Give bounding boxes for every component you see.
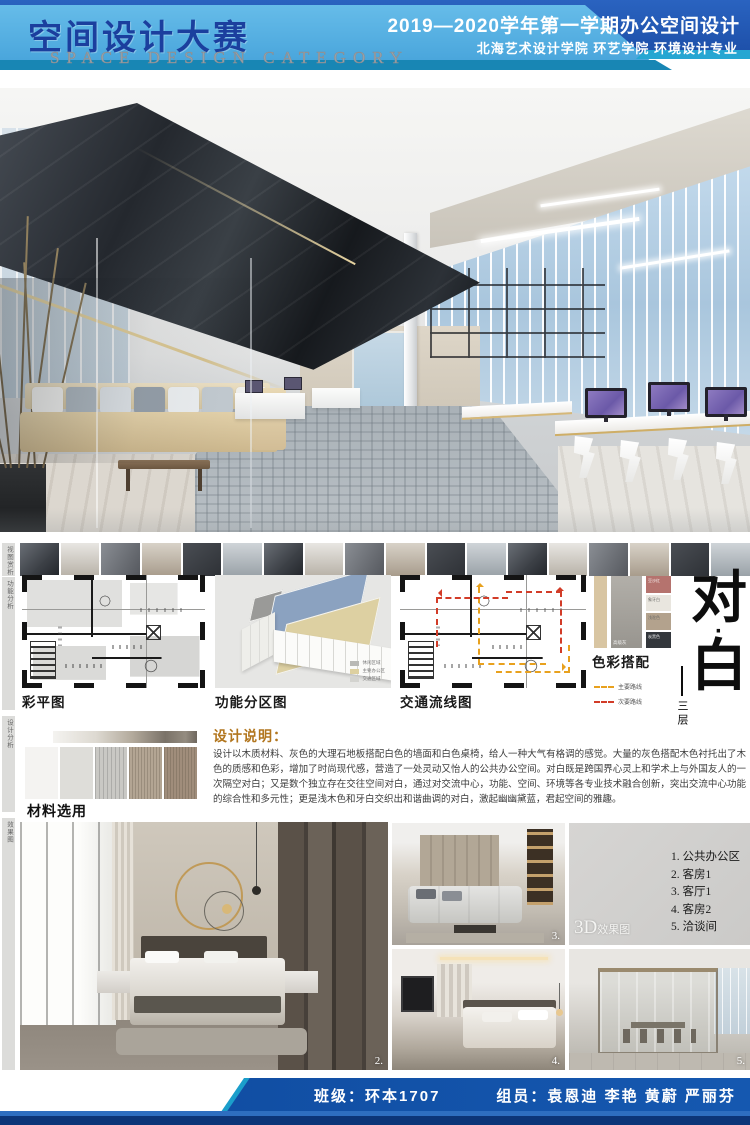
color-chip: 炭黑色	[646, 632, 671, 649]
legend-label: 主要办公区	[363, 668, 386, 674]
project-title-block: 对 · 白 三层	[674, 570, 750, 730]
legend-row: 次要路线	[594, 697, 642, 706]
poster-subtitle: SPACE DESIGN CATEGORY	[50, 48, 409, 68]
materials-label: 材料选用	[27, 801, 87, 821]
thumbnail-image	[142, 543, 181, 576]
description-heading: 设计说明：	[213, 726, 288, 746]
thumbnail-strip	[20, 543, 750, 576]
thumbnail-image	[427, 543, 466, 576]
render-number: 2.	[375, 1055, 383, 1067]
color-plan-label: 彩平图	[22, 691, 66, 711]
flow-arrow	[562, 663, 570, 671]
plan-stairs	[30, 641, 56, 679]
bedroom-throw-blanket	[134, 996, 281, 1013]
floor-indicator-label: 三层	[674, 700, 690, 728]
legend-swatch	[350, 661, 359, 666]
color-chip: 豆沙红	[646, 576, 671, 593]
meeting-chairs	[623, 1029, 695, 1044]
hero-white-desk	[312, 388, 360, 408]
flow-arrow	[556, 583, 564, 591]
legend-row: 主要办公区	[350, 668, 386, 674]
thumbnail-image	[101, 543, 140, 576]
material-swatch	[129, 747, 162, 799]
bedroom-pendant-lamp	[256, 822, 257, 886]
traffic-flow-plan	[400, 575, 586, 688]
class-label: 班级：环本1707	[314, 1085, 440, 1106]
bedroom-bed	[130, 958, 285, 1025]
hero-monitor-small	[284, 377, 302, 390]
rail-tab-renders: 效果图	[2, 818, 15, 1070]
rail-tab-label: 视图赏析	[4, 546, 14, 576]
render-bedroom-large: 2.	[20, 822, 388, 1070]
legend-swatch	[594, 686, 614, 688]
rail-tab-function: 功能分析	[2, 577, 15, 710]
footer-dark-strip	[0, 1116, 750, 1125]
floor-indicator: 三层	[675, 666, 689, 728]
members-label: 组员：袁恩迪 李艳 黄蔚 严丽芬	[496, 1085, 736, 1106]
thumbnail-image	[467, 543, 506, 576]
rail-tab-design: 设计分析	[2, 716, 15, 812]
header: 空间设计大赛 SPACE DESIGN CATEGORY 2019—2020学年…	[0, 0, 750, 88]
hero-monitor	[705, 387, 747, 417]
legend-swatch	[594, 701, 614, 703]
render-list-item: 3. 客厅1	[671, 884, 740, 902]
thumbnail-image	[508, 543, 547, 576]
zoning-side-wall	[241, 612, 275, 672]
hero-office-render	[0, 88, 750, 532]
thumbnail-image	[305, 543, 344, 576]
material-gradient-bar	[53, 731, 197, 743]
plan-elevator	[146, 625, 161, 640]
legend-row: 休闲区域	[350, 660, 386, 666]
color-chip-label: 炭黑色	[648, 634, 660, 639]
flow-legend: 主要路线次要路线	[594, 682, 642, 706]
guestroom-tv	[401, 976, 434, 1013]
meeting-floor	[569, 1053, 750, 1070]
rail-tab-label: 效果图	[4, 821, 14, 1070]
project-title: 对 · 白	[688, 570, 750, 694]
zoning-diagram: 休闲区域主要办公区交通区域	[215, 575, 391, 688]
legend-swatch	[350, 669, 359, 674]
thumbnail-image	[549, 543, 588, 576]
flow-route-secondary	[436, 597, 508, 647]
render-index-panel: 1. 公共办公区2. 客房13. 客厅14. 客房25. 洽谈间 3D效果图	[569, 823, 750, 945]
zoning-label: 功能分区图	[215, 691, 288, 711]
bedroom-nightstand	[285, 971, 318, 993]
render-living-room: 3.	[392, 823, 565, 945]
legend-row: 主要路线	[594, 682, 642, 691]
color-chip-label: 豆沙红	[648, 578, 660, 583]
footer-texts: 班级：环本1707 组员：袁恩迪 李艳 黄蔚 严丽芬	[300, 1082, 750, 1108]
thumbnail-image	[264, 543, 303, 576]
material-swatch	[25, 747, 58, 799]
bedroom-nightstand	[97, 971, 130, 993]
hero-monitor	[648, 382, 690, 412]
description-body: 设计以木质材料、灰色的大理石地板搭配白色的墙面和白色桌椅，给人一种大气有格调的感…	[213, 747, 746, 811]
guestroom-cove-light	[440, 957, 547, 960]
legend-row: 交通区域	[350, 676, 386, 682]
thumbnail-image	[183, 543, 222, 576]
render-3d-badge: 3D效果图	[574, 917, 630, 939]
flow-label: 交通流线图	[400, 691, 473, 711]
living-bookshelf	[527, 829, 553, 905]
render-index-list: 1. 公共办公区2. 客房13. 客厅14. 客房25. 洽谈间	[671, 849, 740, 937]
thumbnail-image	[20, 543, 59, 576]
legend-swatch	[350, 677, 359, 682]
color-floor-plan	[22, 575, 205, 688]
rail-tab-label: 功能分析	[4, 580, 14, 710]
render-number: 5.	[737, 1055, 745, 1067]
render-list-item: 1. 公共办公区	[671, 849, 740, 867]
school-name: 北海艺术设计学院 环艺学院 环境设计专业	[477, 38, 738, 57]
bedroom-rug	[116, 1028, 307, 1055]
hero-floor-shadow	[0, 508, 750, 532]
flow-arrow	[476, 579, 484, 587]
floor-indicator-line	[681, 666, 683, 696]
living-coffee-table	[454, 925, 496, 932]
render-guest-room: 4.	[392, 949, 565, 1070]
palette-beige-strip	[594, 576, 607, 648]
guestroom-lamp	[559, 983, 560, 1009]
rail-tab-views: 视图赏析	[2, 543, 15, 576]
legend-label: 交通区域	[363, 676, 381, 682]
flow-route-secondary	[506, 591, 562, 653]
palette-chips: 豆沙红象牙白浅驼色炭黑色	[646, 576, 671, 648]
zoning-legend: 休闲区域主要办公区交通区域	[350, 660, 386, 682]
legend-label: 主要路线	[618, 682, 642, 691]
legend-label: 休闲区域	[363, 660, 381, 666]
plan-stairs	[408, 641, 434, 679]
flow-arrow	[434, 589, 442, 597]
thumbnail-image	[223, 543, 262, 576]
hero-monitor	[585, 388, 627, 418]
badge-3d-text: 3D	[574, 917, 597, 938]
living-cushions	[416, 889, 436, 899]
palette-main-label: 高级灰	[613, 640, 627, 646]
badge-suffix-text: 效果图	[597, 924, 630, 936]
rail-tab-label: 设计分析	[4, 719, 14, 812]
material-swatches	[25, 747, 197, 799]
color-chip: 浅驼色	[646, 613, 671, 630]
render-list-item: 4. 客房2	[671, 902, 740, 920]
meeting-window	[714, 968, 750, 1033]
render-meeting-room: 5.	[569, 949, 750, 1070]
material-swatch	[164, 747, 197, 799]
guestroom-pillows	[518, 1010, 548, 1020]
bedroom-pillow	[145, 951, 179, 963]
bedroom-window	[20, 822, 116, 1025]
thumbnail-image	[589, 543, 628, 576]
hero-glass-reflection	[0, 278, 260, 463]
color-chip-label: 象牙白	[648, 597, 660, 602]
legend-label: 次要路线	[618, 697, 642, 706]
material-swatch	[60, 747, 93, 799]
meeting-table	[631, 1022, 685, 1028]
palette-main-gray: 高级灰	[611, 576, 642, 648]
thumbnail-image	[345, 543, 384, 576]
render-list-item: 5. 洽谈间	[671, 919, 740, 937]
color-chip: 象牙白	[646, 595, 671, 612]
competition-poster: 空间设计大赛 SPACE DESIGN CATEGORY 2019—2020学年…	[0, 0, 750, 1125]
thumbnail-image	[630, 543, 669, 576]
bedroom-pillow	[204, 951, 238, 963]
material-swatch	[95, 747, 128, 799]
thumbnail-image	[386, 543, 425, 576]
course-title: 2019—2020学年第一学期办公空间设计	[387, 11, 740, 38]
render-number: 3.	[552, 930, 560, 942]
palette-label: 色彩搭配	[592, 651, 650, 671]
title-char-bottom: 白	[688, 638, 750, 694]
color-chip-label: 浅驼色	[648, 615, 660, 620]
thumbnail-image	[61, 543, 100, 576]
living-rug	[406, 933, 544, 943]
render-list-item: 2. 客房1	[671, 867, 740, 885]
render-number: 4.	[552, 1055, 560, 1067]
